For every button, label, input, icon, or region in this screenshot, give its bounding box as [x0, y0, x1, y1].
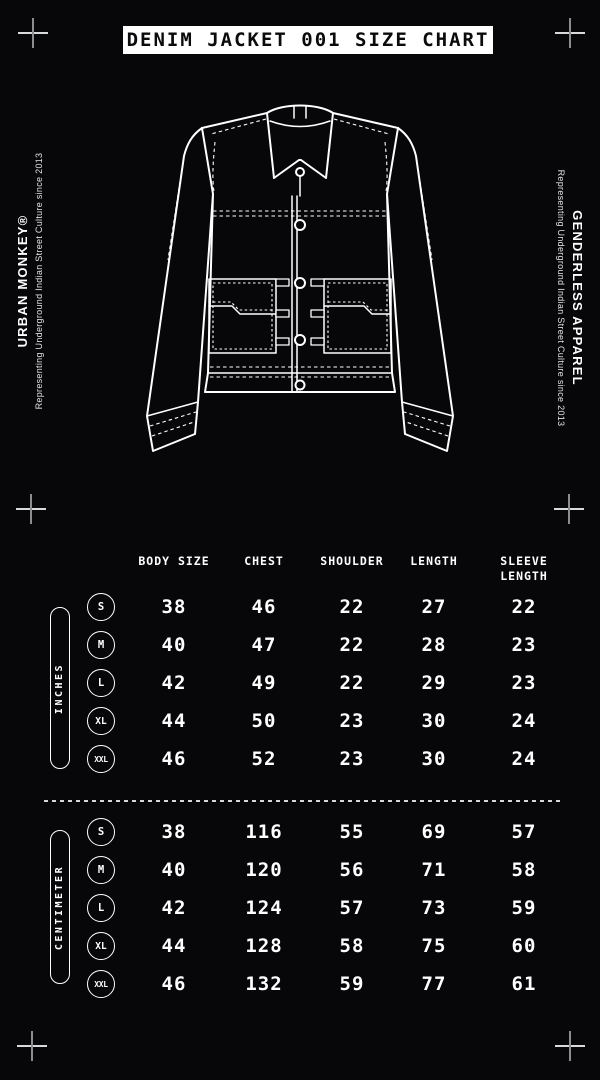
page-title: DENIM JACKET 001 SIZE CHART: [127, 29, 490, 51]
sleeve-length-value: 24: [474, 740, 574, 778]
length-value: 30: [394, 702, 474, 740]
body-size-value: 38: [130, 813, 218, 851]
shoulder-value: 56: [310, 851, 394, 889]
unit-label: INCHES: [55, 662, 66, 713]
chest-value: 120: [218, 851, 310, 889]
length-value: 77: [394, 965, 474, 1003]
body-size-value: 44: [130, 702, 218, 740]
brand-name: URBAN MONKEY®: [15, 131, 30, 431]
crosshair-icon: [16, 494, 46, 524]
body-size-value: 46: [130, 740, 218, 778]
column-header-chest: CHEST: [218, 554, 310, 584]
size-row: XXL 46 52 23 30 24: [72, 740, 574, 778]
brand-name: GENDERLESS APPAREL: [570, 128, 585, 468]
body-size-value: 46: [130, 965, 218, 1003]
column-header-length: LENGTH: [394, 554, 474, 584]
size-badge: L: [87, 669, 115, 697]
chest-value: 46: [218, 588, 310, 626]
body-size-value: 44: [130, 927, 218, 965]
sleeve-length-value: 60: [474, 927, 574, 965]
sleeve-length-value: 23: [474, 664, 574, 702]
size-table-inches: S 38 46 22 27 22 M 40 47 22 28 23 L 42 4…: [72, 588, 574, 778]
sleeve-length-value: 58: [474, 851, 574, 889]
size-badge-cell: L: [72, 664, 130, 702]
chest-value: 116: [218, 813, 310, 851]
length-value: 29: [394, 664, 474, 702]
unit-label: CENTIMETER: [55, 864, 66, 949]
brand-tagline: Representing Underground Indian Street C…: [555, 128, 566, 468]
chest-value: 52: [218, 740, 310, 778]
size-badge: S: [87, 818, 115, 846]
unit-pill-inches: INCHES: [50, 607, 70, 769]
shoulder-value: 23: [310, 740, 394, 778]
section-divider: [44, 800, 560, 802]
size-badge-cell: XXL: [72, 740, 130, 778]
shoulder-value: 22: [310, 664, 394, 702]
shoulder-value: 58: [310, 927, 394, 965]
size-chart-poster: { "colors": {"background": "#070709", "f…: [0, 0, 600, 1080]
body-size-value: 42: [130, 889, 218, 927]
unit-pill-centimeter: CENTIMETER: [50, 830, 70, 984]
shoulder-value: 22: [310, 626, 394, 664]
size-chart-header: BODY SIZE CHEST SHOULDER LENGTH SLEEVE L…: [72, 554, 574, 584]
size-badge: S: [87, 593, 115, 621]
crosshair-icon: [555, 1031, 585, 1061]
column-header-sleeve-length: SLEEVE LENGTH: [489, 554, 559, 584]
length-value: 71: [394, 851, 474, 889]
size-row: L 42 49 22 29 23: [72, 664, 574, 702]
size-row: XL 44 50 23 30 24: [72, 702, 574, 740]
body-size-value: 42: [130, 664, 218, 702]
crosshair-icon: [17, 1031, 47, 1061]
size-row: M 40 47 22 28 23: [72, 626, 574, 664]
header-spacer: [72, 554, 130, 584]
size-badge-cell: S: [72, 813, 130, 851]
size-row: M 40 120 56 71 58: [72, 851, 574, 889]
length-value: 69: [394, 813, 474, 851]
chest-value: 47: [218, 626, 310, 664]
length-value: 30: [394, 740, 474, 778]
length-value: 75: [394, 927, 474, 965]
column-header-body-size: BODY SIZE: [130, 554, 218, 584]
size-badge: XXL: [87, 745, 115, 773]
chest-value: 50: [218, 702, 310, 740]
shoulder-value: 23: [310, 702, 394, 740]
size-badge-cell: XL: [72, 702, 130, 740]
size-badge: M: [87, 631, 115, 659]
body-size-value: 40: [130, 851, 218, 889]
size-row: S 38 46 22 27 22: [72, 588, 574, 626]
size-badge: M: [87, 856, 115, 884]
size-table-centimeter: S 38 116 55 69 57 M 40 120 56 71 58 L 42…: [72, 813, 574, 1003]
length-value: 28: [394, 626, 474, 664]
right-branding: GENDERLESS APPAREL Representing Undergro…: [555, 128, 585, 468]
size-badge-cell: XXL: [72, 965, 130, 1003]
size-row: XL 44 128 58 75 60: [72, 927, 574, 965]
chest-value: 132: [218, 965, 310, 1003]
brand-tagline: Representing Underground Indian Street C…: [34, 131, 45, 431]
column-header-shoulder: SHOULDER: [310, 554, 394, 584]
size-badge-cell: M: [72, 626, 130, 664]
sleeve-length-value: 59: [474, 889, 574, 927]
size-badge-cell: M: [72, 851, 130, 889]
size-badge: L: [87, 894, 115, 922]
size-badge-cell: XL: [72, 927, 130, 965]
size-badge: XL: [87, 932, 115, 960]
size-badge: XXL: [87, 970, 115, 998]
chest-value: 49: [218, 664, 310, 702]
length-value: 73: [394, 889, 474, 927]
chest-value: 128: [218, 927, 310, 965]
sleeve-length-value: 57: [474, 813, 574, 851]
body-size-value: 38: [130, 588, 218, 626]
sleeve-length-value: 24: [474, 702, 574, 740]
sleeve-length-value: 22: [474, 588, 574, 626]
shoulder-value: 57: [310, 889, 394, 927]
body-size-value: 40: [130, 626, 218, 664]
size-row: S 38 116 55 69 57: [72, 813, 574, 851]
left-branding: URBAN MONKEY® Representing Underground I…: [15, 131, 45, 431]
size-badge-cell: L: [72, 889, 130, 927]
shoulder-value: 22: [310, 588, 394, 626]
shoulder-value: 59: [310, 965, 394, 1003]
size-badge: XL: [87, 707, 115, 735]
sleeve-length-value: 23: [474, 626, 574, 664]
sleeve-length-value: 61: [474, 965, 574, 1003]
shoulder-value: 55: [310, 813, 394, 851]
crosshair-icon: [18, 18, 48, 48]
title-banner: DENIM JACKET 001 SIZE CHART: [123, 26, 493, 54]
crosshair-icon: [555, 18, 585, 48]
size-badge-cell: S: [72, 588, 130, 626]
size-row: L 42 124 57 73 59: [72, 889, 574, 927]
denim-jacket-illustration: [120, 90, 480, 470]
crosshair-icon: [554, 494, 584, 524]
length-value: 27: [394, 588, 474, 626]
chest-value: 124: [218, 889, 310, 927]
size-row: XXL 46 132 59 77 61: [72, 965, 574, 1003]
